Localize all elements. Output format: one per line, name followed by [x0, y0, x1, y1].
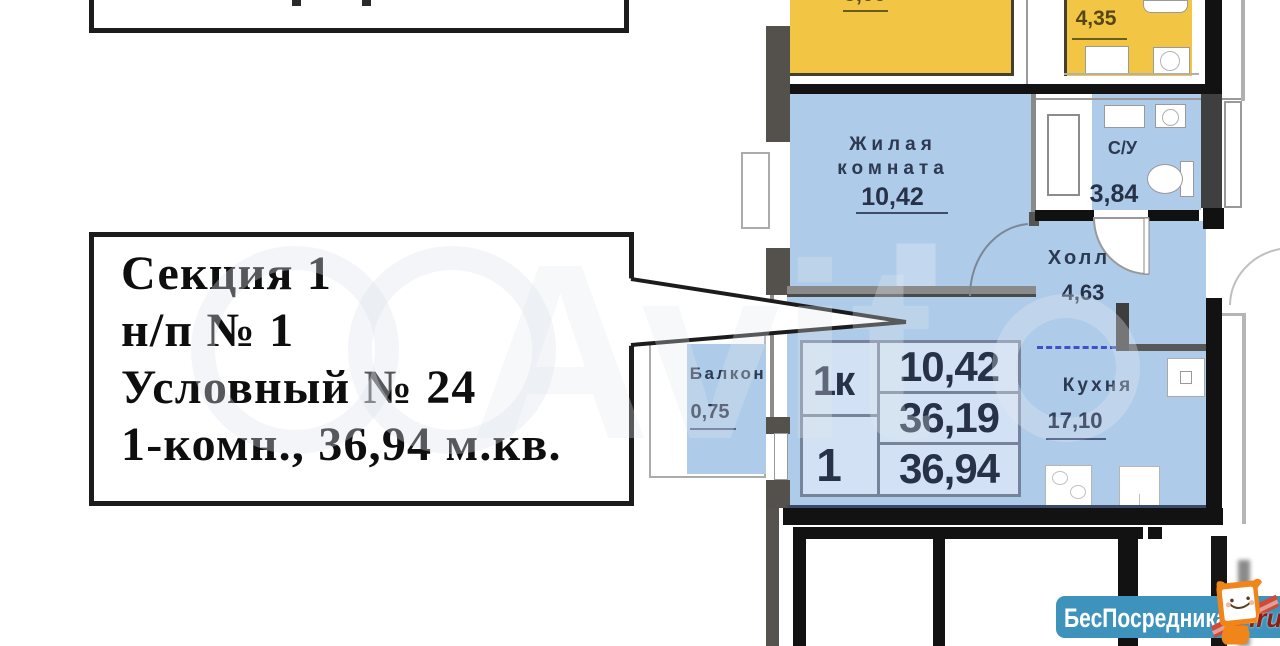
svg-text:Avit: Avit	[470, 212, 933, 491]
